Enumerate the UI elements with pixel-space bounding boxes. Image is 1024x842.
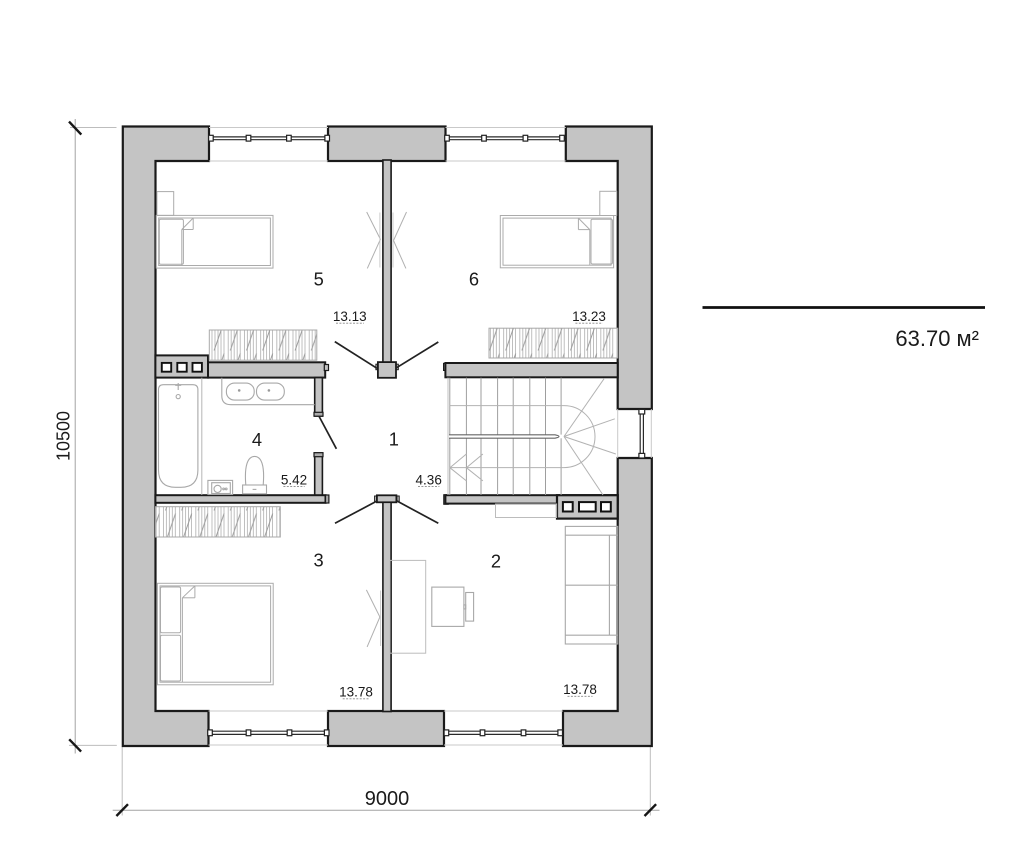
svg-text:13.78: 13.78	[563, 682, 597, 697]
svg-text:13.78: 13.78	[339, 685, 373, 700]
svg-text:3: 3	[314, 550, 324, 571]
svg-text:6: 6	[469, 269, 479, 290]
svg-text:13.13: 13.13	[333, 309, 367, 324]
svg-text:5: 5	[314, 269, 324, 290]
svg-text:9000: 9000	[365, 788, 410, 810]
svg-text:10500: 10500	[54, 411, 74, 461]
svg-text:4.36: 4.36	[416, 472, 442, 487]
svg-text:4: 4	[252, 429, 262, 450]
svg-text:5.42: 5.42	[281, 472, 307, 487]
svg-text:2: 2	[491, 551, 501, 572]
svg-text:63.70 м²: 63.70 м²	[895, 326, 979, 351]
svg-text:13.23: 13.23	[572, 309, 606, 324]
svg-text:1: 1	[389, 429, 399, 450]
